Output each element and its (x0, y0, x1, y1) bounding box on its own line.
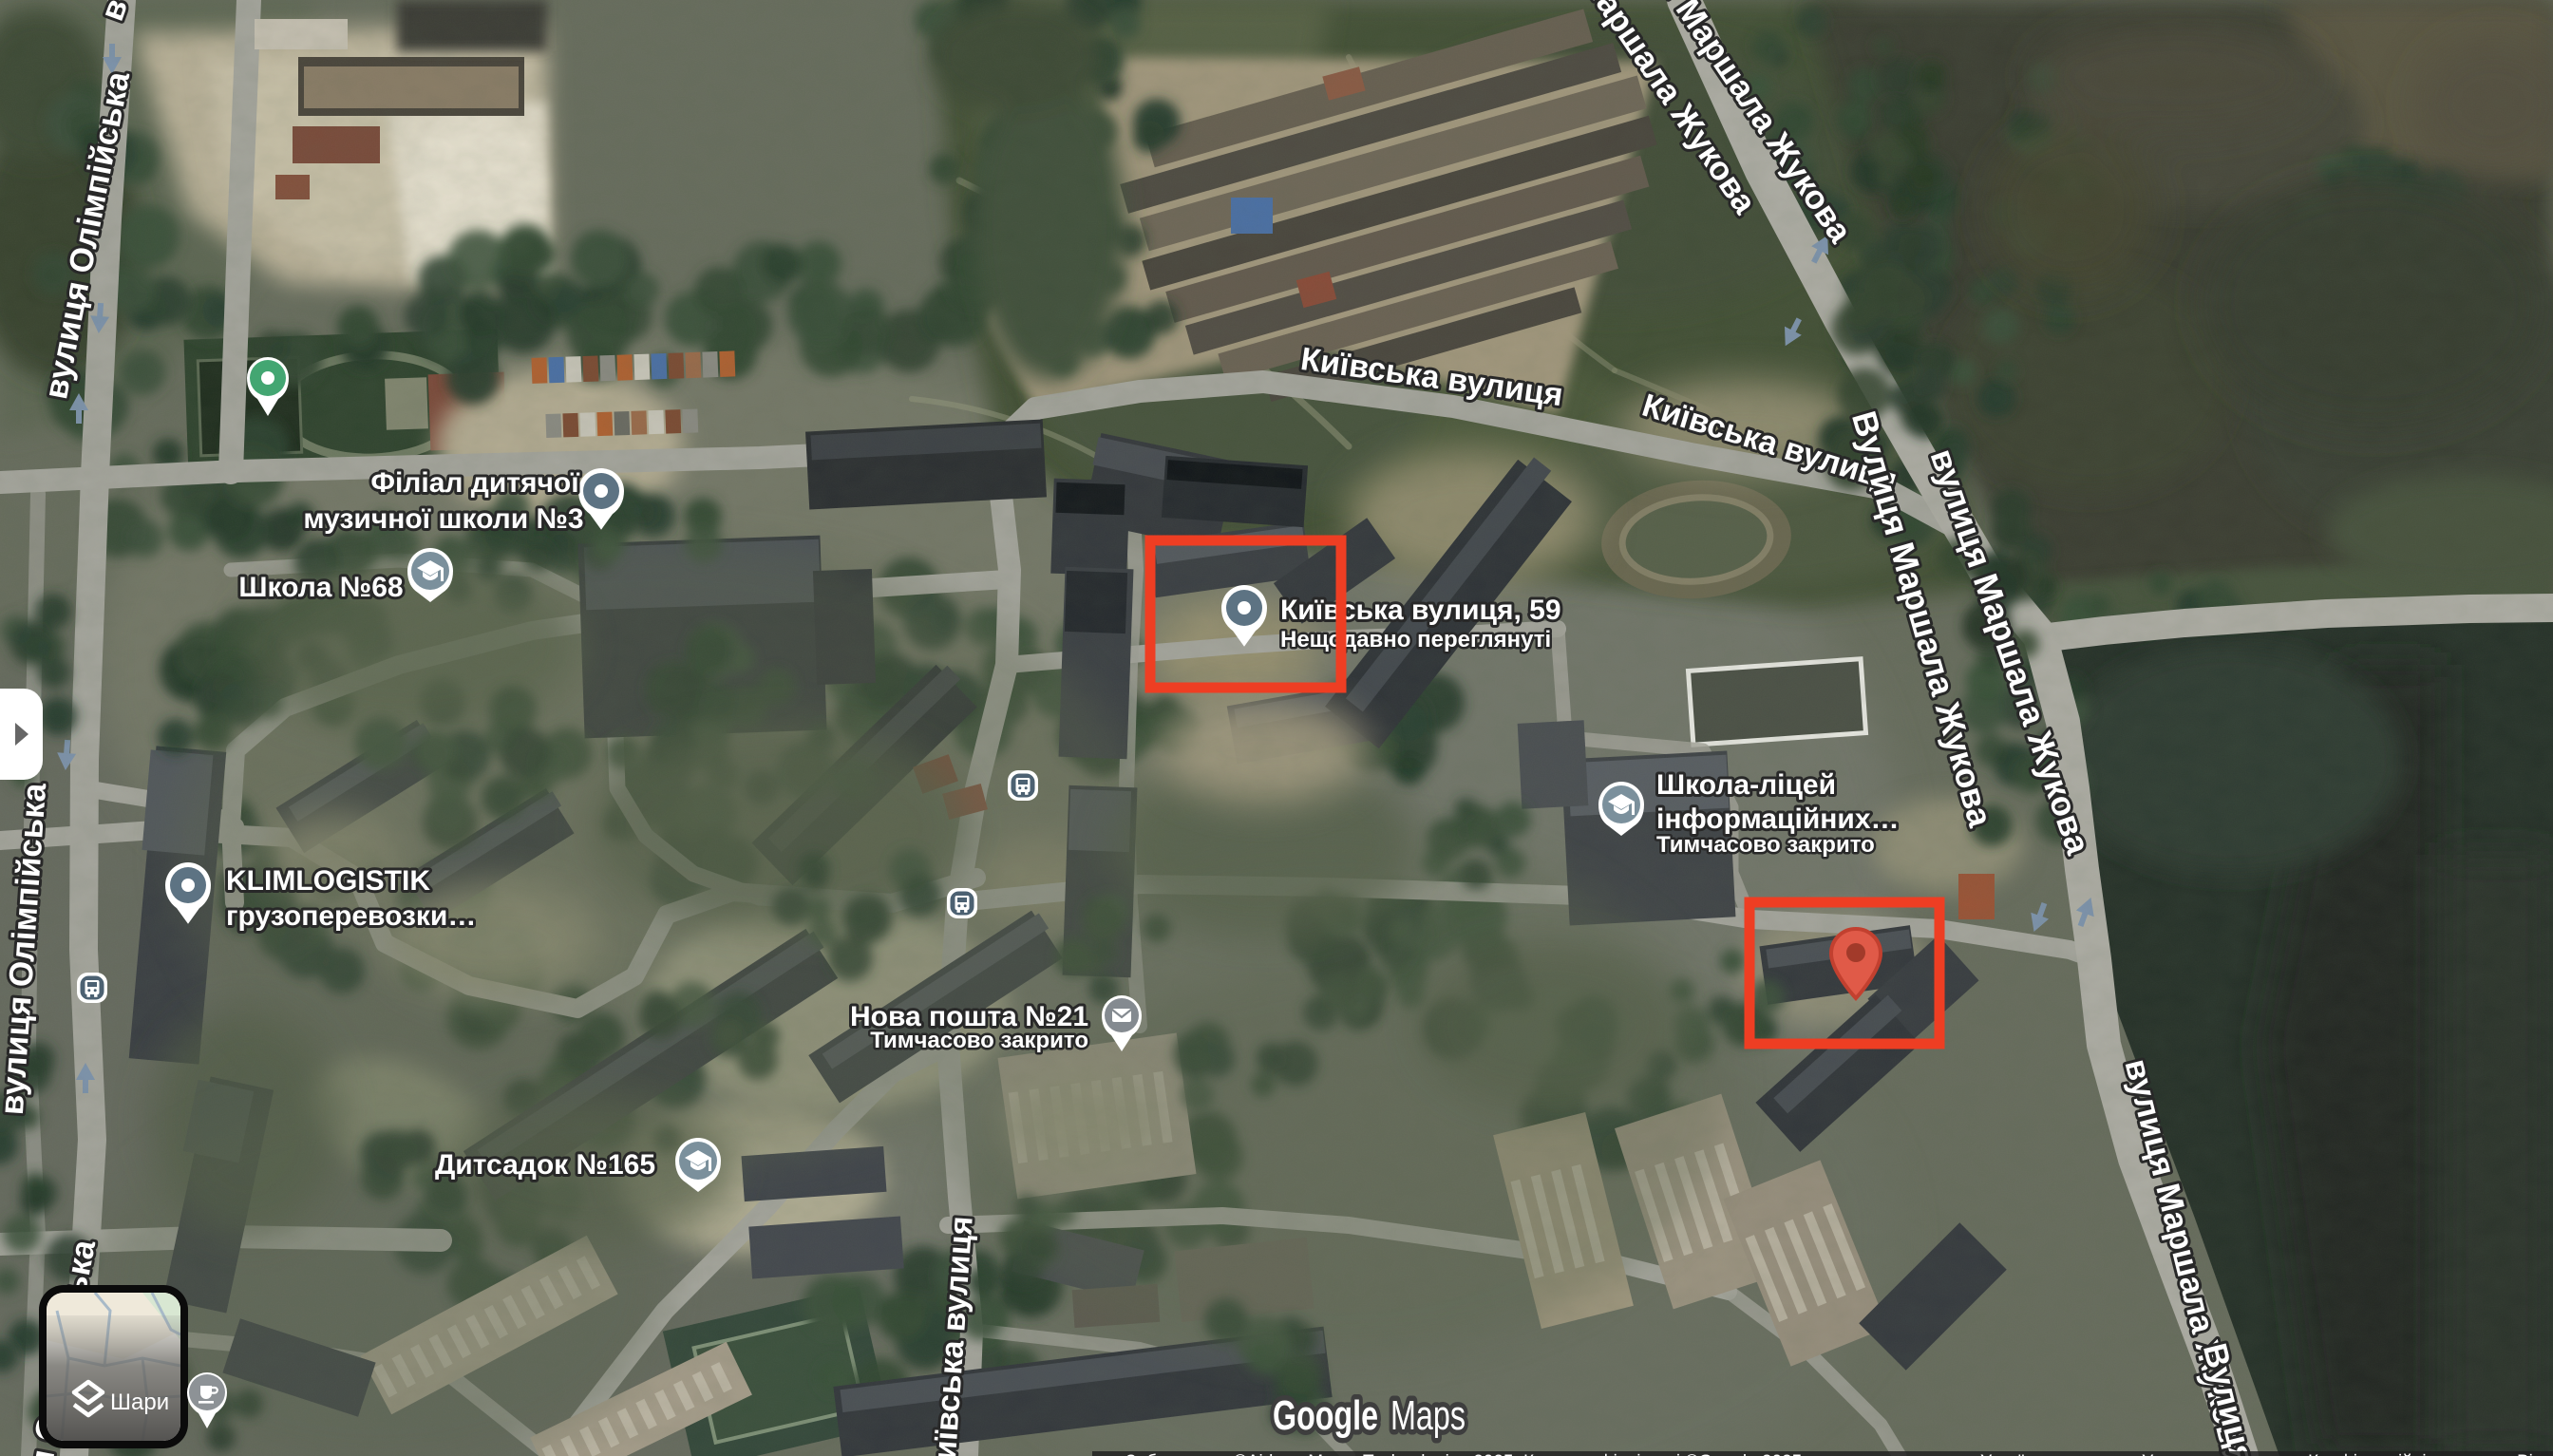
svg-text:музичної школи №3: музичної школи №3 (303, 503, 583, 535)
svg-text:Філіал дитячої: Філіал дитячої (370, 467, 579, 499)
svg-text:Зображення ©Airbus, Maxar Tech: Зображення ©Airbus, Maxar Technologies 2… (1125, 1452, 1802, 1456)
svg-text:Конфіденційність: Конфіденційність (2308, 1452, 2453, 1456)
svg-text:Тимчасово закрито: Тимчасово закрито (870, 1028, 1088, 1053)
svg-text:Шари: Шари (110, 1390, 169, 1415)
svg-text:Google: Google (1273, 1392, 1378, 1439)
svg-text:KLIMLOGISTIK: KLIMLOGISTIK (226, 865, 430, 897)
svg-text:Від: Від (2517, 1452, 2544, 1456)
svg-text:Школа-ліцей: Школа-ліцей (1656, 769, 1836, 801)
svg-text:інформаційних…: інформаційних… (1656, 804, 1900, 835)
svg-text:Maps: Maps (1390, 1392, 1466, 1439)
svg-text:грузоперевозки…: грузоперевозки… (226, 900, 476, 932)
svg-text:Нещодавно переглянуті: Нещодавно переглянуті (1280, 627, 1551, 652)
svg-text:Тимчасово закрито: Тимчасово закрито (1656, 832, 1875, 858)
svg-text:Українська: Українська (1980, 1452, 2071, 1456)
svg-text:Київська вулиця, 59: Київська вулиця, 59 (1280, 595, 1561, 626)
svg-text:Умови: Умови (2142, 1452, 2195, 1456)
svg-text:Школа №68: Школа №68 (238, 572, 403, 603)
svg-text:Дитсадок №165: Дитсадок №165 (435, 1149, 655, 1181)
